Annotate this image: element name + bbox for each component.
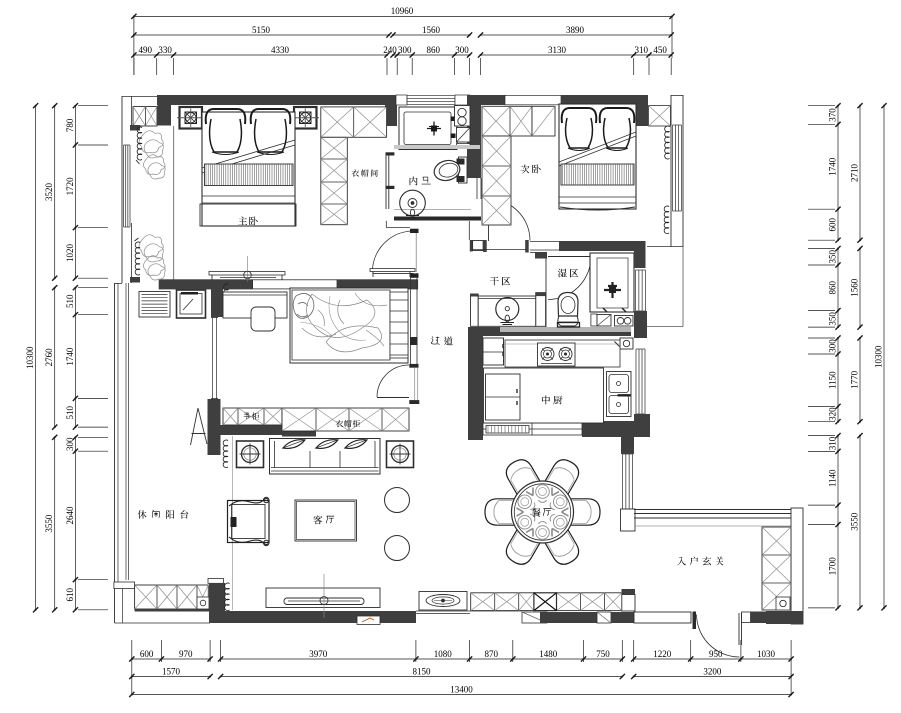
svg-text:1030: 1030	[757, 649, 776, 659]
svg-text:1020: 1020	[65, 244, 75, 263]
svg-text:10960: 10960	[391, 6, 414, 16]
svg-text:860: 860	[828, 281, 838, 295]
svg-text:510: 510	[65, 294, 75, 308]
svg-text:750: 750	[596, 649, 610, 659]
svg-text:350: 350	[828, 312, 838, 326]
svg-text:1740: 1740	[828, 157, 838, 176]
svg-text:2640: 2640	[65, 506, 75, 525]
svg-text:330: 330	[158, 45, 172, 55]
svg-text:3200: 3200	[703, 666, 722, 676]
svg-text:10300: 10300	[25, 346, 35, 369]
svg-text:490: 490	[139, 45, 153, 55]
svg-text:13400: 13400	[450, 684, 473, 694]
svg-text:1740: 1740	[65, 347, 75, 366]
svg-text:300: 300	[398, 45, 412, 55]
svg-text:2710: 2710	[850, 164, 860, 183]
svg-text:310: 310	[828, 436, 838, 450]
svg-text:3970: 3970	[309, 649, 328, 659]
svg-text:2760: 2760	[44, 348, 54, 367]
svg-text:1560: 1560	[850, 278, 860, 297]
svg-text:10300: 10300	[874, 345, 884, 368]
svg-text:8150: 8150	[413, 666, 432, 676]
svg-text:310: 310	[635, 45, 649, 55]
svg-text:5150: 5150	[252, 25, 271, 35]
svg-text:1480: 1480	[539, 649, 558, 659]
svg-text:1140: 1140	[828, 469, 838, 487]
svg-text:3550: 3550	[850, 512, 860, 531]
svg-text:300: 300	[455, 45, 469, 55]
svg-text:3550: 3550	[44, 514, 54, 533]
svg-text:600: 600	[140, 649, 154, 659]
svg-text:870: 870	[484, 649, 498, 659]
svg-text:3520: 3520	[44, 183, 54, 202]
svg-text:300: 300	[828, 339, 838, 353]
svg-text:1080: 1080	[434, 649, 453, 659]
svg-text:1570: 1570	[162, 666, 181, 676]
svg-text:860: 860	[427, 45, 441, 55]
svg-text:510: 510	[65, 406, 75, 420]
svg-text:600: 600	[828, 217, 838, 231]
svg-text:1770: 1770	[850, 370, 860, 389]
svg-text:610: 610	[65, 588, 75, 602]
svg-text:240: 240	[383, 45, 397, 55]
svg-text:970: 970	[179, 649, 193, 659]
svg-text:300: 300	[65, 437, 75, 451]
svg-text:1560: 1560	[422, 25, 441, 35]
svg-text:1220: 1220	[653, 649, 672, 659]
svg-text:1720: 1720	[65, 177, 75, 196]
svg-text:1150: 1150	[828, 371, 838, 389]
svg-text:4330: 4330	[271, 45, 290, 55]
svg-text:780: 780	[65, 118, 75, 132]
svg-text:3890: 3890	[566, 25, 585, 35]
svg-text:3130: 3130	[548, 45, 567, 55]
svg-text:320: 320	[828, 407, 838, 421]
svg-text:350: 350	[828, 250, 838, 264]
svg-text:450: 450	[653, 45, 667, 55]
svg-text:370: 370	[828, 108, 838, 122]
svg-text:1700: 1700	[828, 557, 838, 576]
